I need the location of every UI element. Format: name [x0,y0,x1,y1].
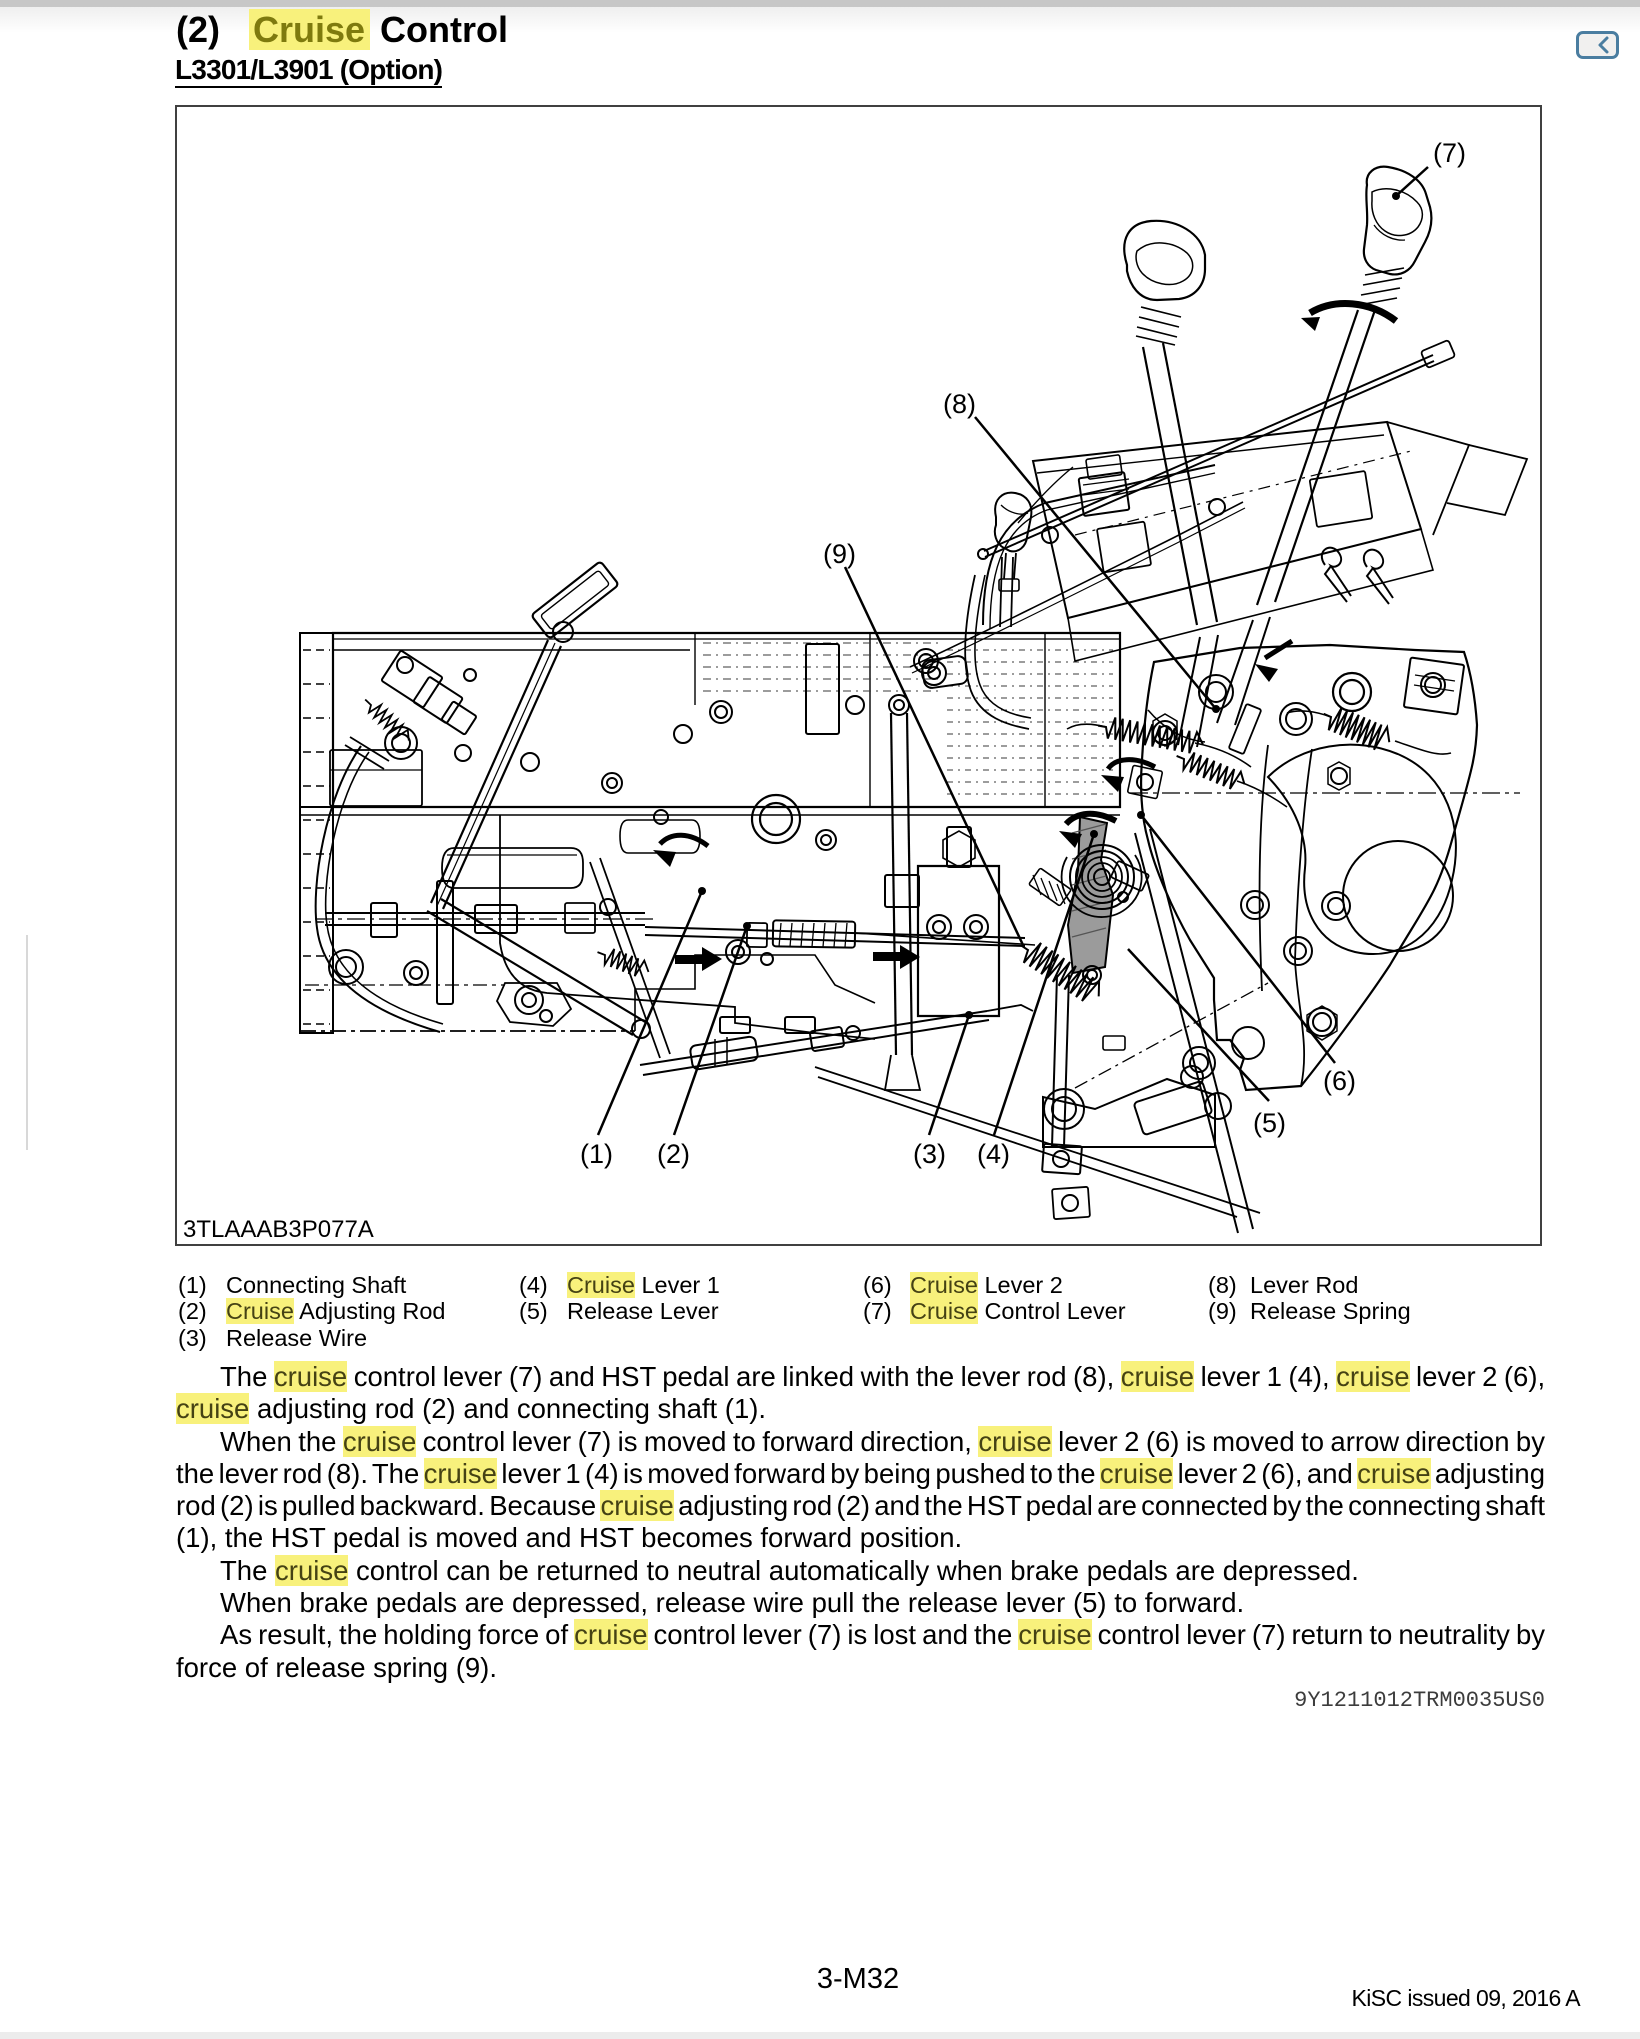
svg-text:(6): (6) [1323,1066,1356,1096]
svg-text:(1): (1) [580,1139,613,1169]
svg-text:(2): (2) [657,1139,690,1169]
svg-text:(5): (5) [1253,1108,1286,1138]
svg-text:(8): (8) [943,389,976,419]
svg-text:(9): (9) [823,539,856,569]
svg-text:(7): (7) [1433,138,1466,168]
svg-text:(3): (3) [913,1139,946,1169]
svg-text:(4): (4) [977,1139,1010,1169]
